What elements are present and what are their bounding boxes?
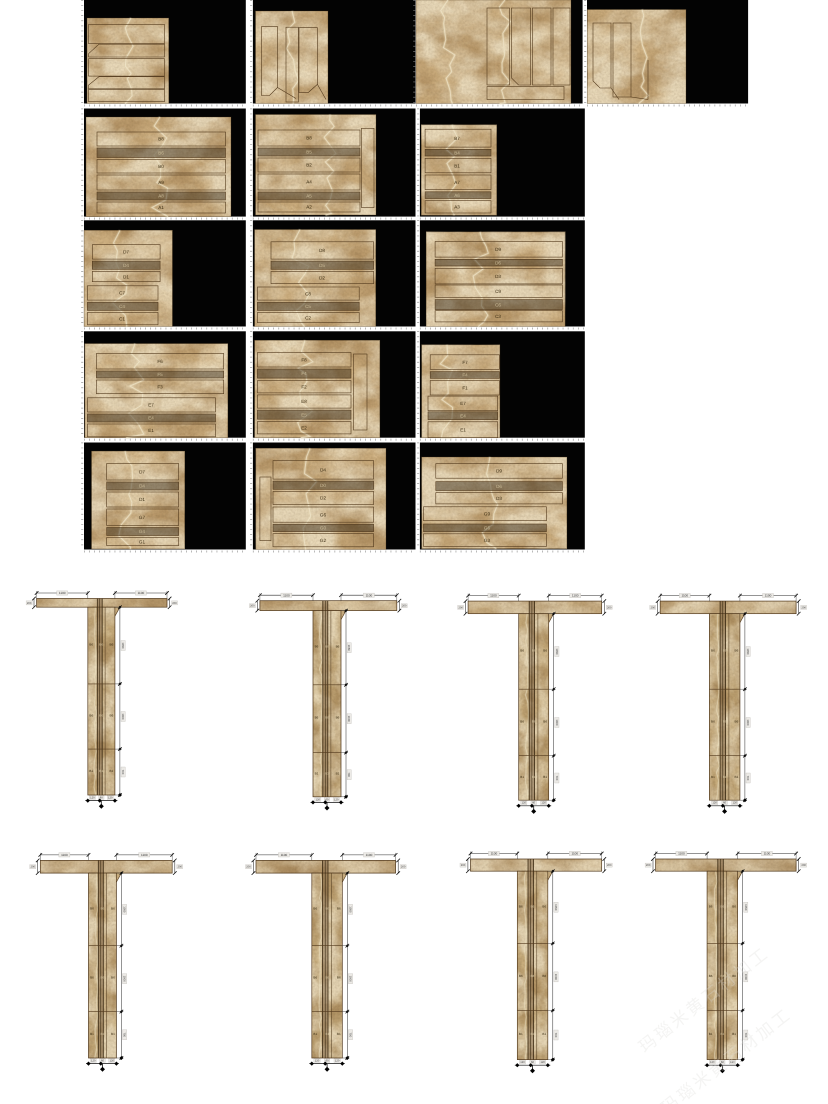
svg-text:D3: D3 xyxy=(495,274,501,279)
svg-text:D4: D4 xyxy=(139,484,145,489)
svg-text:1050: 1050 xyxy=(123,906,127,913)
svg-text:F7: F7 xyxy=(462,360,468,365)
svg-text:1000: 1000 xyxy=(121,713,125,720)
svg-text:B6: B6 xyxy=(532,649,536,653)
svg-text:1000: 1000 xyxy=(349,976,353,983)
svg-text:B6: B6 xyxy=(90,976,94,980)
svg-text:A2: A2 xyxy=(306,205,312,210)
svg-text:G0: G0 xyxy=(320,526,327,531)
svg-text:F4: F4 xyxy=(301,371,307,376)
svg-text:B6: B6 xyxy=(732,904,736,908)
svg-text:60: 60 xyxy=(531,1061,534,1064)
svg-text:B1: B1 xyxy=(721,1032,725,1036)
svg-text:1000: 1000 xyxy=(746,719,750,726)
svg-text:1100: 1100 xyxy=(678,852,685,856)
svg-text:B1: B1 xyxy=(89,769,93,773)
svg-text:B8: B8 xyxy=(158,137,164,142)
svg-text:B6: B6 xyxy=(337,906,341,910)
svg-text:B1: B1 xyxy=(723,775,727,779)
svg-text:120: 120 xyxy=(520,1061,525,1064)
svg-text:B6: B6 xyxy=(520,649,524,653)
svg-text:E8: E8 xyxy=(301,399,307,404)
svg-text:B2: B2 xyxy=(306,163,312,168)
svg-text:D4: D4 xyxy=(123,263,129,268)
svg-text:120: 120 xyxy=(712,802,717,805)
svg-text:B0: B0 xyxy=(158,164,164,169)
svg-text:B6: B6 xyxy=(89,643,93,647)
svg-text:A8: A8 xyxy=(158,194,164,199)
svg-text:B6: B6 xyxy=(89,714,93,718)
svg-text:B6: B6 xyxy=(709,904,713,908)
svg-text:200: 200 xyxy=(801,606,806,609)
svg-text:G4: G4 xyxy=(139,529,146,534)
svg-text:B6: B6 xyxy=(711,649,715,653)
svg-text:C7: C7 xyxy=(119,291,125,296)
svg-text:B6: B6 xyxy=(519,904,523,908)
svg-text:120: 120 xyxy=(315,1060,320,1063)
svg-text:700: 700 xyxy=(349,1032,353,1037)
svg-text:E2: E2 xyxy=(301,425,307,430)
svg-text:F4: F4 xyxy=(462,373,468,378)
svg-text:D7: D7 xyxy=(123,250,129,255)
svg-text:1100: 1100 xyxy=(366,593,373,597)
svg-text:B1: B1 xyxy=(542,1032,546,1036)
svg-text:G3: G3 xyxy=(484,538,491,543)
svg-text:200: 200 xyxy=(461,864,466,867)
svg-text:120: 120 xyxy=(522,802,527,805)
svg-text:120: 120 xyxy=(335,1060,340,1063)
svg-text:200: 200 xyxy=(177,866,182,869)
svg-text:B6: B6 xyxy=(542,904,546,908)
svg-text:1050: 1050 xyxy=(349,906,353,913)
svg-text:B1: B1 xyxy=(336,772,340,776)
svg-text:B1: B1 xyxy=(337,1032,341,1036)
svg-text:B6: B6 xyxy=(315,645,319,649)
svg-text:B6: B6 xyxy=(519,974,523,978)
svg-text:700: 700 xyxy=(123,1032,127,1037)
svg-text:F6: F6 xyxy=(157,359,163,364)
svg-text:1100: 1100 xyxy=(366,853,373,857)
svg-text:B6: B6 xyxy=(543,649,547,653)
svg-text:1050: 1050 xyxy=(555,648,559,655)
svg-text:1100: 1100 xyxy=(571,852,578,856)
svg-text:200: 200 xyxy=(246,866,251,869)
svg-text:B1: B1 xyxy=(519,1032,523,1036)
svg-text:G6: G6 xyxy=(484,526,491,531)
svg-text:E5: E5 xyxy=(301,412,307,417)
svg-text:B1: B1 xyxy=(709,1032,713,1036)
svg-text:D0: D0 xyxy=(320,483,326,488)
svg-text:B6: B6 xyxy=(325,976,329,980)
svg-text:B6: B6 xyxy=(101,976,105,980)
svg-text:F5: F5 xyxy=(157,372,163,377)
svg-text:D1: D1 xyxy=(123,274,129,279)
svg-text:B1: B1 xyxy=(315,772,319,776)
svg-text:700: 700 xyxy=(347,772,351,777)
svg-text:D4: D4 xyxy=(320,468,326,473)
svg-text:200: 200 xyxy=(401,866,406,869)
svg-text:1100: 1100 xyxy=(491,852,498,856)
svg-text:F3: F3 xyxy=(157,385,163,390)
svg-text:200: 200 xyxy=(172,602,177,605)
svg-text:D8: D8 xyxy=(319,248,325,253)
svg-text:1050: 1050 xyxy=(746,648,750,655)
svg-text:1100: 1100 xyxy=(764,852,771,856)
svg-text:120: 120 xyxy=(108,797,113,800)
svg-text:F2: F2 xyxy=(301,384,307,389)
svg-text:D2: D2 xyxy=(320,496,326,501)
svg-text:G6: G6 xyxy=(320,512,327,517)
svg-text:B1: B1 xyxy=(110,769,114,773)
svg-text:B1: B1 xyxy=(99,769,103,773)
svg-text:A4: A4 xyxy=(306,180,312,185)
svg-text:A1: A1 xyxy=(158,205,164,210)
svg-text:G2: G2 xyxy=(320,538,327,543)
svg-text:B4: B4 xyxy=(454,150,460,155)
svg-text:E1: E1 xyxy=(148,428,154,433)
svg-text:1100: 1100 xyxy=(490,594,497,598)
svg-text:B6: B6 xyxy=(531,974,535,978)
svg-text:60: 60 xyxy=(532,802,535,805)
svg-text:B6: B6 xyxy=(735,649,739,653)
svg-text:E4: E4 xyxy=(460,413,466,418)
svg-text:B1: B1 xyxy=(711,775,715,779)
svg-text:C1: C1 xyxy=(119,316,125,321)
svg-text:D5: D5 xyxy=(319,263,325,268)
svg-text:120: 120 xyxy=(540,1061,545,1064)
svg-text:1100: 1100 xyxy=(281,853,288,857)
svg-text:700: 700 xyxy=(121,770,125,775)
svg-text:B6: B6 xyxy=(723,649,727,653)
svg-text:D7: D7 xyxy=(139,469,145,474)
svg-text:B6: B6 xyxy=(315,716,319,720)
svg-text:B6: B6 xyxy=(721,904,725,908)
svg-text:1050: 1050 xyxy=(347,645,351,652)
svg-text:F8: F8 xyxy=(301,358,307,363)
svg-text:D6: D6 xyxy=(496,484,502,489)
svg-text:B6: B6 xyxy=(110,714,114,718)
svg-text:B6: B6 xyxy=(723,720,727,724)
svg-text:B8: B8 xyxy=(306,136,312,141)
svg-text:1100: 1100 xyxy=(283,593,290,597)
svg-text:B6: B6 xyxy=(542,974,546,978)
svg-text:60: 60 xyxy=(723,802,726,805)
svg-text:B6: B6 xyxy=(90,906,94,910)
svg-text:A6: A6 xyxy=(454,193,460,198)
svg-text:B6: B6 xyxy=(531,904,535,908)
svg-text:120: 120 xyxy=(316,798,321,801)
svg-text:C5: C5 xyxy=(305,304,311,309)
svg-text:B6: B6 xyxy=(532,720,536,724)
svg-text:B1: B1 xyxy=(101,1032,105,1036)
svg-text:G1: G1 xyxy=(139,539,146,544)
svg-text:200: 200 xyxy=(646,864,651,867)
svg-text:B1: B1 xyxy=(732,1032,736,1036)
svg-text:200: 200 xyxy=(458,606,463,609)
svg-text:B1: B1 xyxy=(532,775,536,779)
svg-text:200: 200 xyxy=(607,864,612,867)
svg-text:B1: B1 xyxy=(111,1032,115,1036)
svg-text:200: 200 xyxy=(402,605,407,608)
svg-text:G7: G7 xyxy=(139,515,146,520)
svg-text:D9: D9 xyxy=(496,469,502,474)
svg-text:B6: B6 xyxy=(101,906,105,910)
svg-text:B6: B6 xyxy=(325,645,329,649)
svg-text:B1: B1 xyxy=(735,775,739,779)
svg-text:A9: A9 xyxy=(158,180,164,185)
svg-text:1100: 1100 xyxy=(138,591,145,595)
svg-text:B7: B7 xyxy=(454,136,460,141)
svg-text:120: 120 xyxy=(732,802,737,805)
svg-text:1100: 1100 xyxy=(681,594,688,598)
svg-text:1050: 1050 xyxy=(744,904,748,911)
svg-text:200: 200 xyxy=(650,606,655,609)
svg-text:D9: D9 xyxy=(495,247,501,252)
svg-text:B5: B5 xyxy=(306,150,312,155)
svg-text:200: 200 xyxy=(250,605,255,608)
svg-text:B6: B6 xyxy=(99,714,103,718)
svg-text:1050: 1050 xyxy=(554,904,558,911)
svg-text:D3: D3 xyxy=(496,496,502,501)
svg-text:B6: B6 xyxy=(110,643,114,647)
svg-text:200: 200 xyxy=(801,864,806,867)
svg-text:120: 120 xyxy=(109,1060,114,1063)
svg-text:60: 60 xyxy=(101,1060,104,1063)
svg-text:B1: B1 xyxy=(454,163,460,168)
svg-text:B6: B6 xyxy=(543,720,547,724)
svg-text:G9: G9 xyxy=(484,511,491,516)
svg-text:B1: B1 xyxy=(325,772,329,776)
svg-text:200: 200 xyxy=(27,602,32,605)
svg-text:D2: D2 xyxy=(319,275,325,280)
svg-text:1100: 1100 xyxy=(765,594,772,598)
svg-text:B1: B1 xyxy=(543,775,547,779)
svg-text:1000: 1000 xyxy=(555,719,559,726)
svg-text:60: 60 xyxy=(326,798,329,801)
svg-text:700: 700 xyxy=(555,776,559,781)
svg-text:B6: B6 xyxy=(313,906,317,910)
svg-text:C8: C8 xyxy=(305,291,311,296)
svg-text:1000: 1000 xyxy=(123,976,127,983)
svg-text:1100: 1100 xyxy=(59,591,66,595)
svg-text:C6: C6 xyxy=(495,302,501,307)
svg-text:D6: D6 xyxy=(495,260,501,265)
svg-text:B6: B6 xyxy=(520,720,524,724)
svg-text:C3: C3 xyxy=(495,314,501,319)
svg-text:B6: B6 xyxy=(711,720,715,724)
svg-text:B1: B1 xyxy=(90,1032,94,1036)
svg-text:700: 700 xyxy=(746,776,750,781)
svg-text:B1: B1 xyxy=(313,1032,317,1036)
svg-text:C4: C4 xyxy=(119,304,125,309)
svg-text:E4: E4 xyxy=(148,416,154,421)
svg-text:120: 120 xyxy=(90,797,95,800)
svg-text:B6: B6 xyxy=(735,720,739,724)
svg-text:120: 120 xyxy=(334,798,339,801)
svg-text:1100: 1100 xyxy=(141,853,148,857)
svg-text:B6: B6 xyxy=(313,976,317,980)
svg-text:C2: C2 xyxy=(305,315,311,320)
svg-text:1000: 1000 xyxy=(554,974,558,981)
svg-text:E1: E1 xyxy=(460,427,466,432)
svg-text:120: 120 xyxy=(541,802,546,805)
svg-text:60: 60 xyxy=(326,1060,329,1063)
svg-text:A5: A5 xyxy=(306,194,312,199)
svg-text:D1: D1 xyxy=(139,497,145,502)
svg-text:A3: A3 xyxy=(454,205,460,210)
svg-text:E7: E7 xyxy=(148,403,154,408)
svg-text:60: 60 xyxy=(100,797,103,800)
svg-text:200: 200 xyxy=(607,606,612,609)
svg-text:B6: B6 xyxy=(111,976,115,980)
svg-text:A7: A7 xyxy=(454,180,460,185)
svg-text:F1: F1 xyxy=(462,385,468,390)
svg-text:B6: B6 xyxy=(336,645,340,649)
svg-text:B6: B6 xyxy=(111,906,115,910)
svg-text:1050: 1050 xyxy=(121,642,125,649)
svg-text:120: 120 xyxy=(91,1060,96,1063)
svg-text:1100: 1100 xyxy=(61,853,68,857)
svg-text:700: 700 xyxy=(554,1033,558,1038)
svg-text:B6: B6 xyxy=(709,974,713,978)
svg-text:B1: B1 xyxy=(325,1032,329,1036)
svg-text:B6: B6 xyxy=(325,716,329,720)
svg-text:B6: B6 xyxy=(99,643,103,647)
svg-text:E7: E7 xyxy=(460,401,466,406)
svg-text:B6: B6 xyxy=(336,716,340,720)
svg-text:B6: B6 xyxy=(325,906,329,910)
svg-text:B6: B6 xyxy=(158,150,164,155)
svg-text:200: 200 xyxy=(31,866,36,869)
svg-text:1100: 1100 xyxy=(572,594,579,598)
svg-text:B1: B1 xyxy=(520,775,524,779)
svg-text:B6: B6 xyxy=(337,976,341,980)
svg-text:B1: B1 xyxy=(531,1032,535,1036)
svg-text:1000: 1000 xyxy=(347,716,351,723)
svg-text:C9: C9 xyxy=(495,289,501,294)
